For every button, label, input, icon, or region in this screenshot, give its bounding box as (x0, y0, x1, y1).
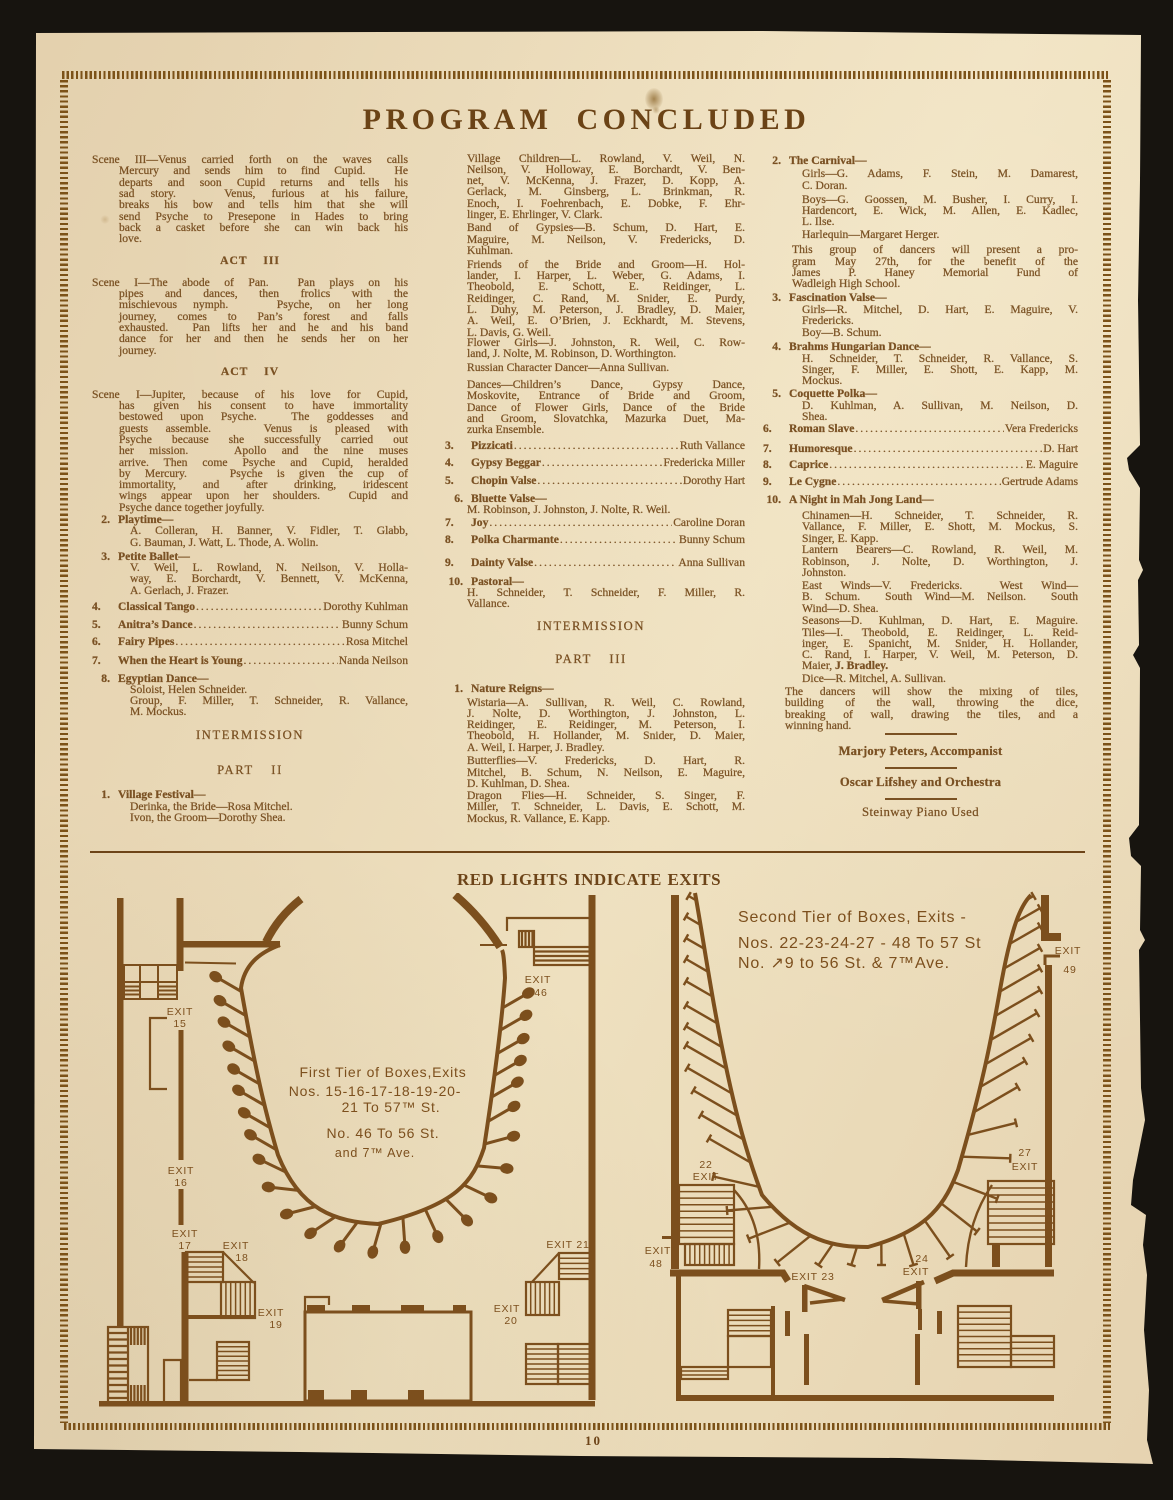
svg-text:17: 17 (178, 1240, 191, 1252)
svg-text:EXIT: EXIT (168, 1165, 195, 1177)
svg-text:EXIT: EXIT (494, 1303, 521, 1315)
svg-text:No. ↗9 to 56 St. & 7™Ave.: No. ↗9 to 56 St. & 7™Ave. (738, 955, 950, 972)
svg-text:49: 49 (1063, 964, 1076, 976)
svg-text:18: 18 (235, 1252, 248, 1264)
svg-text:EXIT 23: EXIT 23 (791, 1271, 834, 1283)
svg-text:20: 20 (504, 1315, 517, 1327)
svg-text:21 To 57™ St.: 21 To 57™ St. (342, 1099, 441, 1115)
svg-text:24: 24 (915, 1253, 928, 1265)
svg-text:27: 27 (1018, 1147, 1031, 1159)
svg-text:EXIT: EXIT (223, 1240, 250, 1252)
svg-text:22: 22 (699, 1159, 712, 1171)
svg-text:16: 16 (174, 1177, 187, 1189)
svg-text:EXIT: EXIT (1012, 1161, 1039, 1173)
svg-text:Second Tier of Boxes, Exits -: Second Tier of Boxes, Exits - (738, 909, 967, 926)
svg-text:46: 46 (534, 987, 547, 999)
svg-text:EXIT: EXIT (258, 1307, 285, 1319)
svg-text:EXIT: EXIT (167, 1006, 194, 1018)
svg-text:EXIT: EXIT (903, 1266, 930, 1278)
svg-text:19: 19 (269, 1319, 282, 1331)
svg-text:15: 15 (173, 1018, 186, 1030)
svg-text:48: 48 (649, 1258, 662, 1270)
svg-text:Nos. 15-16-17-18-19-20-: Nos. 15-16-17-18-19-20- (289, 1083, 461, 1099)
svg-text:Nos. 22-23-24-27 - 48 To 57 St: Nos. 22-23-24-27 - 48 To 57 St (738, 935, 981, 952)
svg-text:and 7™ Ave.: and 7™ Ave. (335, 1146, 415, 1160)
svg-text:EXIT: EXIT (693, 1171, 720, 1183)
svg-text:First Tier of Boxes,Exits: First Tier of Boxes,Exits (299, 1064, 466, 1080)
svg-text:EXIT 21: EXIT 21 (546, 1239, 589, 1251)
svg-text:EXIT: EXIT (645, 1245, 672, 1257)
svg-text:EXIT: EXIT (525, 974, 552, 986)
svg-text:EXIT: EXIT (172, 1228, 199, 1240)
svg-text:No. 46 To 56 St.: No. 46 To 56 St. (327, 1125, 440, 1141)
